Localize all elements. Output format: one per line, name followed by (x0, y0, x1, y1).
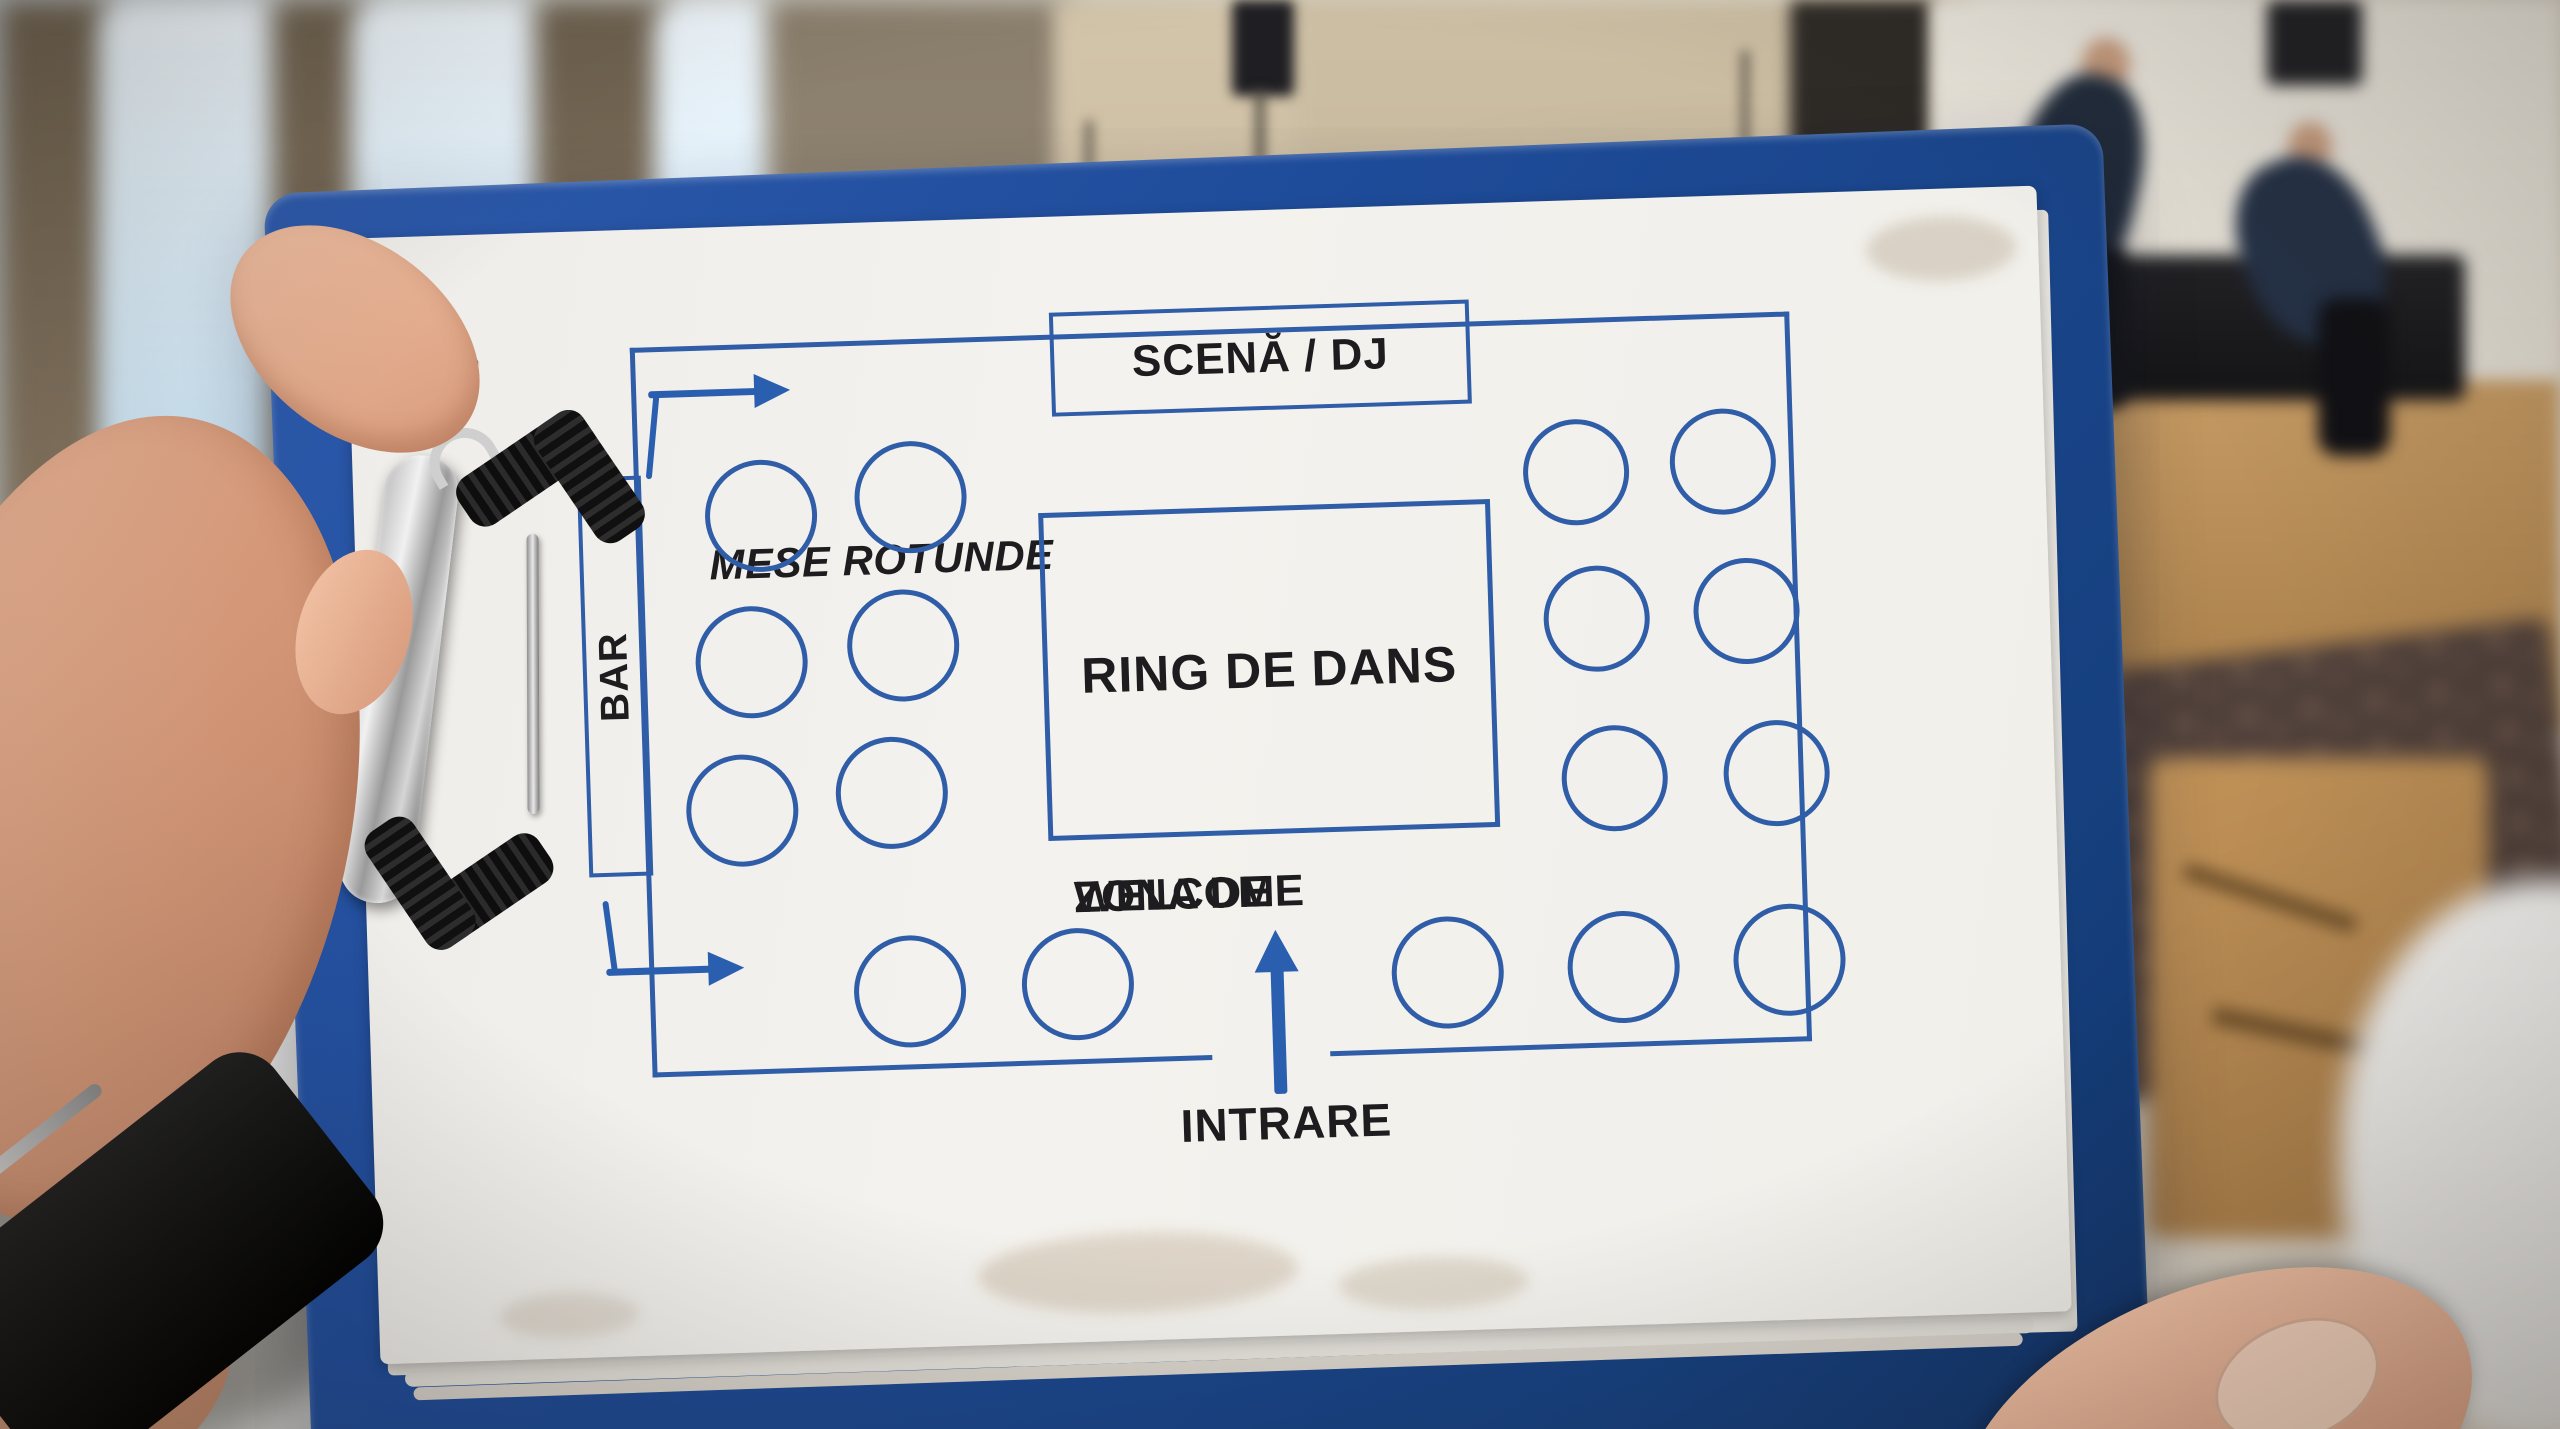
speaker (1232, 0, 1294, 96)
bar-label: BAR (591, 631, 639, 722)
speaker (2267, 0, 2362, 85)
table-circle (1560, 724, 1669, 833)
plan-boundary-bottom-right (1330, 1036, 1812, 1056)
left-tables-group (703, 439, 996, 878)
entrance-arrow-icon (1251, 929, 1304, 1096)
clipboard: SCENĂ / DJ BAR MESE ROTUNDE RING DE DANS (263, 123, 2152, 1429)
stage-dj-box: SCENĂ / DJ (1049, 300, 1472, 417)
table-circle (1521, 418, 1630, 527)
table-circle (853, 439, 968, 554)
table-circle (685, 753, 800, 868)
welcome-zone-label: ZONA DE WELCOME (1073, 858, 1473, 871)
table-circle (1722, 718, 1831, 827)
dance-floor-box: RING DE DANS (1038, 499, 1500, 841)
bottom-tables-left (852, 926, 1146, 1055)
plan-boundary-bottom-left (652, 1055, 1212, 1078)
ballroom-photo-scene: SCENĂ / DJ BAR MESE ROTUNDE RING DE DANS (0, 0, 2560, 1429)
entrance-label: INTRARE (1086, 1089, 1487, 1156)
table-circle (1566, 909, 1681, 1024)
flow-arrow-bottom-left-icon (600, 896, 763, 1011)
floor-plan: SCENĂ / DJ BAR MESE ROTUNDE RING DE DANS (544, 279, 1885, 1340)
table-circle (1732, 902, 1847, 1017)
table-circle (703, 458, 818, 573)
table-circle (834, 735, 949, 850)
dance-floor-label: RING DE DANS (1080, 635, 1458, 705)
table-circle (845, 588, 960, 703)
table-circle (694, 605, 809, 720)
table-circle (1390, 915, 1505, 1030)
table-circle (1020, 926, 1135, 1041)
stage-dj-label: SCENĂ / DJ (1131, 329, 1389, 387)
paper-stain (1865, 214, 2017, 283)
bottom-tables-right (1390, 902, 1854, 1036)
worker-legs (2318, 298, 2390, 456)
table-circle (1542, 564, 1651, 673)
floor-plan-paper: SCENĂ / DJ BAR MESE ROTUNDE RING DE DANS (345, 186, 2072, 1365)
table-circle (1668, 407, 1777, 516)
right-tables-group (1512, 405, 1846, 855)
table-circle (1692, 556, 1801, 665)
table-circle (852, 934, 967, 1049)
